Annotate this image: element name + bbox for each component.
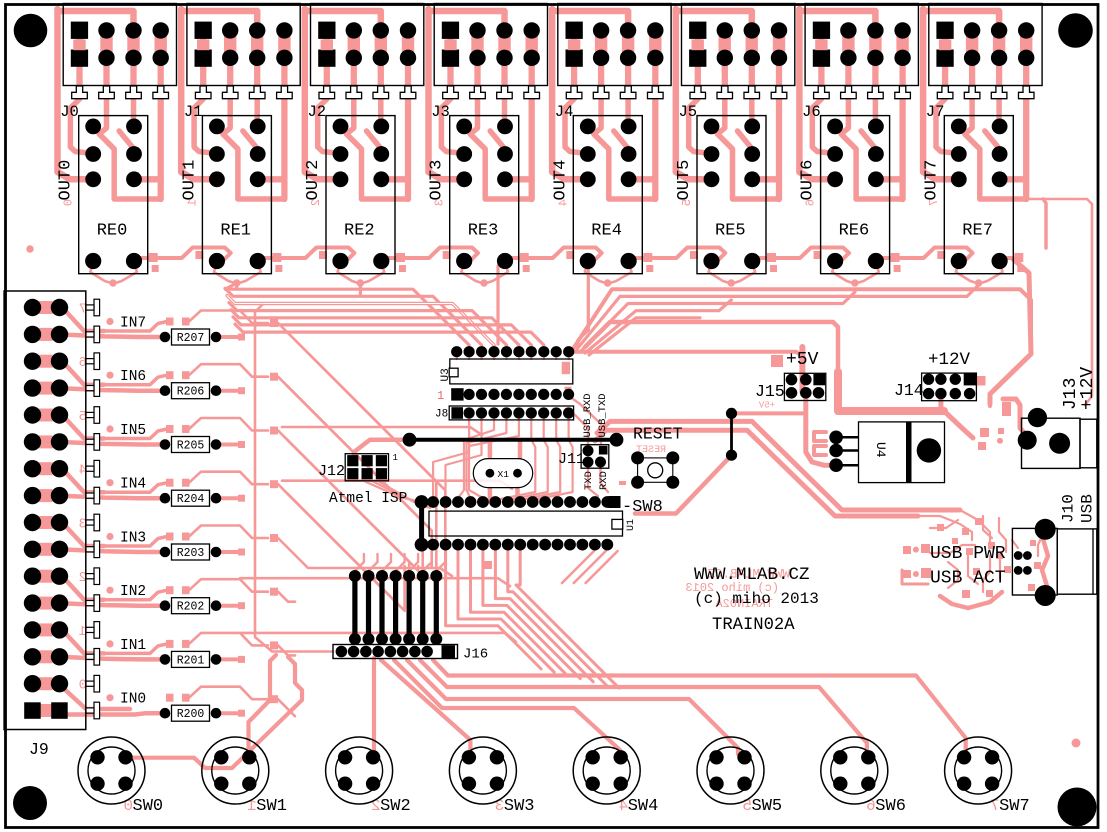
svg-text:J1: J1 <box>184 103 203 121</box>
svg-text:TRAIN02A: TRAIN02A <box>712 616 795 635</box>
svg-text:Atmel ISP: Atmel ISP <box>329 491 407 507</box>
svg-text:RE1: RE1 <box>220 222 251 241</box>
svg-text:RXD: RXD <box>598 471 610 490</box>
svg-text:J7: J7 <box>926 103 945 121</box>
svg-text:SW6: SW6 <box>875 797 906 816</box>
svg-text:USB_TXD: USB_TXD <box>597 393 609 437</box>
svg-text:J0: J0 <box>60 103 79 121</box>
svg-text:J11: J11 <box>558 451 585 468</box>
svg-text:OUT2: OUT2 <box>304 160 323 201</box>
svg-text:+12V: +12V <box>1078 367 1098 410</box>
svg-text:SW0: SW0 <box>133 797 164 816</box>
svg-text:+5V: +5V <box>786 350 819 370</box>
svg-text:RE5: RE5 <box>715 222 746 241</box>
svg-text:X1: X1 <box>498 469 510 480</box>
svg-text:J5: J5 <box>679 103 698 121</box>
svg-text:R201: R201 <box>177 654 205 667</box>
svg-text:OUT3: OUT3 <box>428 160 447 201</box>
svg-text:R205: R205 <box>177 440 205 453</box>
svg-text:OUT6: OUT6 <box>799 160 818 201</box>
svg-text:IN4: IN4 <box>120 477 146 493</box>
svg-text:IN7: IN7 <box>120 316 146 332</box>
svg-text:USB ACT: USB ACT <box>930 569 1006 589</box>
svg-text:1: 1 <box>437 389 444 403</box>
svg-text:SW4: SW4 <box>628 797 659 816</box>
svg-text:J6: J6 <box>802 103 821 121</box>
svg-text:IN3: IN3 <box>120 531 146 547</box>
svg-text:J10: J10 <box>1060 494 1078 523</box>
svg-text:R204: R204 <box>177 493 205 506</box>
svg-text:RE7: RE7 <box>962 222 993 241</box>
svg-text:TXD: TXD <box>583 471 595 490</box>
svg-text:J8: J8 <box>435 409 448 421</box>
svg-text:SW2: SW2 <box>380 797 411 816</box>
svg-text:J14: J14 <box>894 381 924 400</box>
svg-text:IN2: IN2 <box>120 584 146 600</box>
svg-text:RE0: RE0 <box>97 222 128 241</box>
svg-text:R207: R207 <box>177 332 205 345</box>
svg-text:RE2: RE2 <box>344 222 375 241</box>
svg-text:1: 1 <box>393 453 398 463</box>
svg-text:RE6: RE6 <box>839 222 870 241</box>
svg-text:SW3: SW3 <box>504 797 535 816</box>
svg-text:OUT4: OUT4 <box>551 160 570 201</box>
svg-text:USB_RXD: USB_RXD <box>582 393 594 437</box>
svg-text:IN0: IN0 <box>120 692 146 708</box>
svg-text:U4: U4 <box>873 442 888 458</box>
svg-text:OUT5: OUT5 <box>675 160 694 201</box>
svg-text:U3: U3 <box>440 368 452 381</box>
svg-text:+5V: +5V <box>758 401 775 411</box>
svg-text:RE3: RE3 <box>468 222 499 241</box>
svg-text:R200: R200 <box>177 708 205 721</box>
svg-text:R203: R203 <box>177 547 205 560</box>
svg-text:J15: J15 <box>755 382 785 401</box>
svg-text:J2: J2 <box>308 103 327 121</box>
svg-text:R202: R202 <box>177 601 205 614</box>
svg-text:RESET: RESET <box>633 425 683 444</box>
svg-text:-SW8: -SW8 <box>622 498 663 517</box>
svg-text:WWW.MLAB.CZ: WWW.MLAB.CZ <box>694 565 810 585</box>
svg-text:J3: J3 <box>431 103 450 121</box>
svg-text:+12V: +12V <box>928 350 971 370</box>
svg-text:J16: J16 <box>463 647 488 663</box>
svg-text:U1: U1 <box>626 519 637 531</box>
svg-text:SW1: SW1 <box>256 797 287 816</box>
svg-text:J12: J12 <box>318 463 345 480</box>
svg-text:USB: USB <box>1079 494 1097 523</box>
svg-text:J9: J9 <box>29 740 49 759</box>
svg-text:RE4: RE4 <box>591 222 622 241</box>
svg-text:IN6: IN6 <box>120 369 146 385</box>
svg-text:J4: J4 <box>555 103 574 121</box>
svg-text:R206: R206 <box>177 386 205 399</box>
svg-text:OUT7: OUT7 <box>922 160 941 201</box>
svg-text:OUT1: OUT1 <box>180 160 199 201</box>
svg-text:USB PWR: USB PWR <box>930 544 1006 564</box>
svg-text:IN1: IN1 <box>120 638 146 654</box>
svg-text:SW5: SW5 <box>752 797 783 816</box>
svg-text:(c) miho 2013: (c) miho 2013 <box>694 590 819 608</box>
svg-text:SW7: SW7 <box>999 797 1030 816</box>
svg-text:OUT0: OUT0 <box>57 160 76 201</box>
svg-text:IN5: IN5 <box>120 423 146 439</box>
